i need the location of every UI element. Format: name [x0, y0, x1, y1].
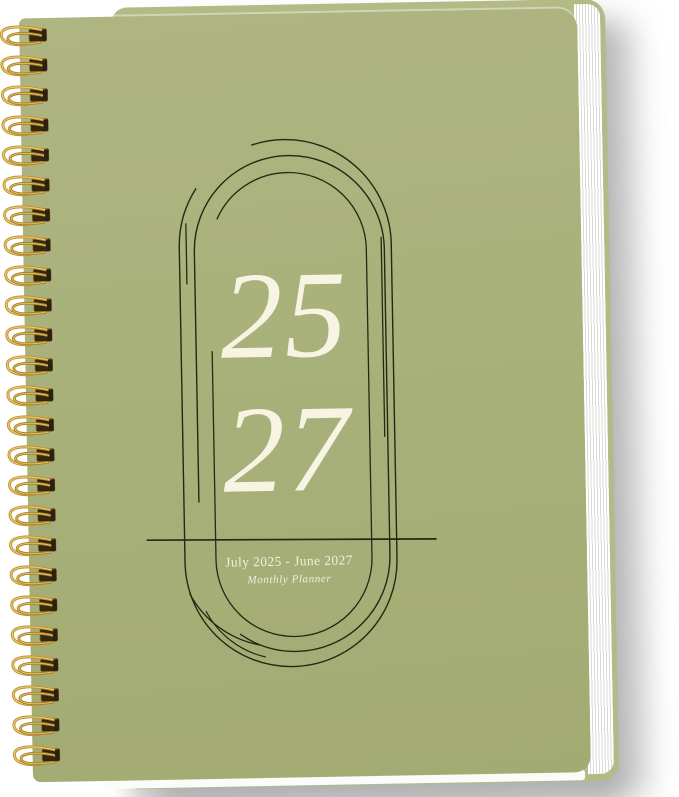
spiral-loop-icon — [6, 593, 64, 618]
spiral-loop-icon — [0, 293, 58, 318]
spiral-loop-icon — [4, 533, 62, 558]
product-photo-planner: 25 27 July 2025 - June 2027 Monthly Plan… — [0, 0, 679, 797]
spiral-loop-icon — [6, 623, 64, 648]
spiral-loop-icon — [1, 353, 59, 378]
spiral-loop-icon — [2, 413, 60, 438]
spiral-loop-icon — [0, 83, 55, 108]
spiral-loop-icon — [4, 503, 62, 528]
spiral-loop-icon — [1, 323, 59, 348]
spiral-loop-icon — [8, 743, 66, 768]
front-cover: 25 27 July 2025 - June 2027 Monthly Plan… — [19, 8, 591, 782]
cover-year-top: 25 — [133, 251, 435, 380]
spiral-loop-icon — [7, 683, 65, 708]
cover-design: 25 27 July 2025 - June 2027 Monthly Plan… — [131, 119, 441, 684]
divider-line — [147, 535, 437, 544]
spiral-loop-icon — [8, 713, 66, 738]
spiral-loop-icon — [0, 113, 55, 138]
spiral-loop-icon — [0, 143, 56, 168]
spiral-loop-icon — [0, 53, 54, 78]
spiral-loop-icon — [0, 263, 58, 288]
spiral-loop-icon — [7, 653, 65, 678]
spiral-loop-icon — [0, 233, 57, 258]
spiral-loop-icon — [0, 23, 54, 48]
spiral-loop-icon — [0, 203, 57, 228]
spiral-loop-icon — [5, 563, 63, 588]
spiral-loop-icon — [0, 173, 56, 198]
cover-year-bottom: 27 — [136, 385, 438, 514]
spiral-loop-icon — [3, 443, 61, 468]
spiral-loop-icon — [2, 383, 60, 408]
notebook: 25 27 July 2025 - June 2027 Monthly Plan… — [19, 0, 619, 791]
spiral-loop-icon — [3, 473, 61, 498]
